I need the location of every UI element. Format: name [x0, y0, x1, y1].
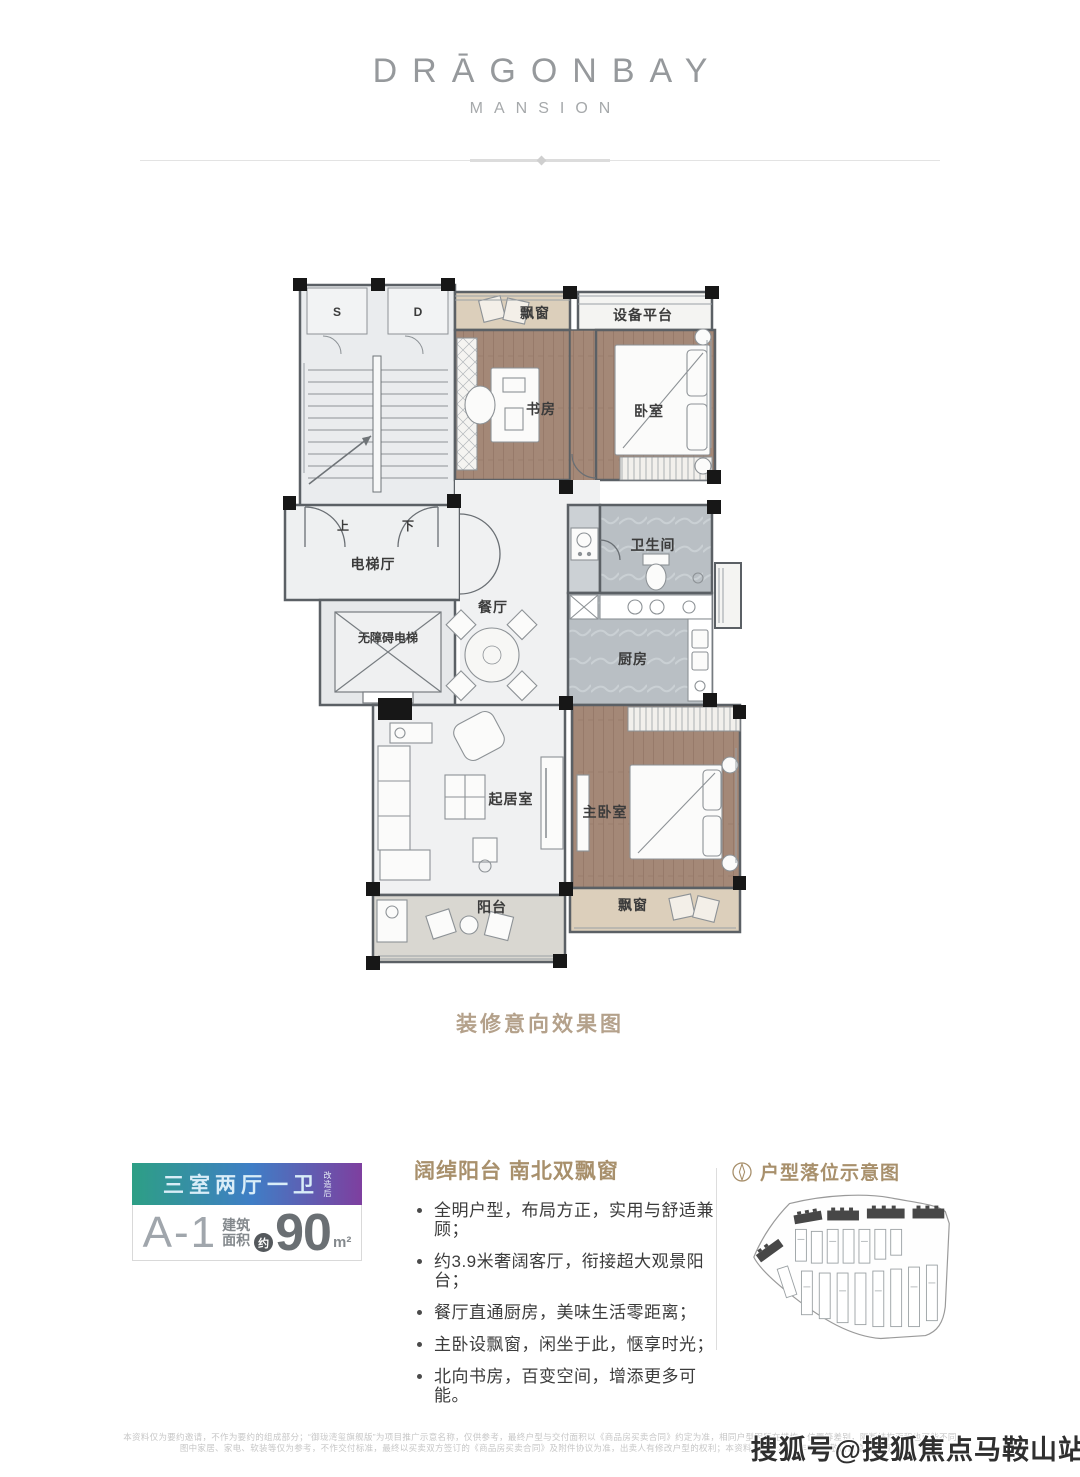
unit-area-box: A-1 建筑 面积 约 90 m²: [132, 1205, 362, 1261]
hallway: [455, 480, 600, 505]
siteplan-title: 户型落位示意图: [760, 1158, 900, 1185]
bullet-dot: [417, 1342, 422, 1347]
bullet-dot: [417, 1374, 422, 1379]
label-bay-bottom: 飘窗: [618, 897, 648, 913]
features-heading: 阔绰阳台 南北双飘窗: [414, 1155, 714, 1185]
unit-code: A-1: [143, 1208, 217, 1258]
label-bathroom: 卫生间: [631, 537, 676, 553]
siteplan-block: 户型落位示意图: [730, 1158, 980, 1363]
plan-caption: 装修意向效果图: [0, 1008, 1080, 1038]
label-accessible-elevator: 无障碍电梯: [357, 630, 418, 645]
label-living: 起居室: [488, 791, 534, 807]
bullet-dot: [417, 1208, 422, 1213]
label-bedroom: 卧室: [634, 403, 664, 419]
brand-subtitle: MANSION: [0, 100, 1080, 118]
label-kitchen: 厨房: [618, 651, 648, 667]
feature-text: 餐厅直通厨房，美味生活零距离；: [434, 1303, 697, 1322]
features-block: 阔绰阳台 南北双飘窗 全明户型，布局方正，实用与舒适兼顾； 约3.9米奢阔客厅，…: [414, 1155, 714, 1418]
unit-type-bar: 三室两厅一卫 改造后: [132, 1163, 362, 1205]
label-down: 下: [402, 519, 414, 533]
unit-type-note: 改造后: [323, 1171, 331, 1198]
unit-type-label: 三室两厅一卫: [163, 1169, 319, 1199]
feature-item: 主卧设飘窗，闲坐于此，惬享时光；: [414, 1335, 714, 1354]
approx-badge: 约: [254, 1233, 273, 1252]
label-shaft-d: D: [414, 305, 423, 319]
label-bay-top: 飘窗: [520, 305, 550, 321]
bedroom-corridor: [570, 330, 596, 505]
area-label-bottom: 面积: [222, 1233, 250, 1248]
bullet-dot: [417, 1310, 422, 1315]
area-unit: m²: [333, 1234, 351, 1251]
unit-badge: 三室两厅一卫 改造后 A-1 建筑 面积 约 90 m²: [132, 1163, 362, 1261]
label-elevator-hall: 电梯厅: [351, 556, 396, 572]
feature-text: 主卧设飘窗，闲坐于此，惬享时光；: [434, 1335, 714, 1354]
feature-item: 全明户型，布局方正，实用与舒适兼顾；: [414, 1201, 714, 1239]
bullet-dot: [417, 1259, 422, 1264]
area-labels: 建筑 面积: [222, 1218, 250, 1248]
label-master: 主卧室: [583, 804, 628, 820]
flyer-page: DRĀGONBAY MANSION: [0, 0, 1080, 1477]
feature-text: 北向书房，百变空间，增添更多可能。: [434, 1367, 714, 1405]
brand-block: DRĀGONBAY MANSION: [0, 52, 1080, 118]
watermark: 搜狐号@搜狐焦点马鞍山站: [751, 1428, 1080, 1467]
feature-text: 全明户型，布局方正，实用与舒适兼顾；: [434, 1201, 714, 1239]
feature-item: 餐厅直通厨房，美味生活零距离；: [414, 1303, 714, 1322]
label-dining: 餐厅: [477, 599, 508, 615]
divider-ornament: [537, 156, 547, 166]
brand-title: DRĀGONBAY: [0, 52, 1080, 91]
label-up: 上: [337, 518, 349, 533]
feature-item: 约3.9米奢阔客厅，衔接超大观景阳台；: [414, 1252, 714, 1290]
elevator-cab: [335, 612, 441, 703]
label-balcony: 阳台: [477, 899, 507, 915]
compass-icon: [730, 1160, 754, 1184]
elevator-hall: [285, 505, 460, 600]
header-divider: [140, 160, 940, 161]
siteplan-header: 户型落位示意图: [730, 1158, 980, 1185]
feature-item: 北向书房，百变空间，增添更多可能。: [414, 1367, 714, 1405]
feature-text: 约3.9米奢阔客厅，衔接超大观景阳台；: [434, 1252, 714, 1290]
label-study: 书房: [526, 401, 556, 417]
section-divider: [716, 1168, 717, 1350]
area-value: 90: [275, 1203, 331, 1263]
floorplan: S D 飘窗 设备平台 书房 卧室 上 下 电梯厅 无障碍电梯 餐厅 卫生间 厨…: [283, 278, 763, 978]
area-label-top: 建筑: [222, 1218, 250, 1233]
label-equipment: 设备平台: [613, 307, 673, 323]
feature-list: 全明户型，布局方正，实用与舒适兼顾； 约3.9米奢阔客厅，衔接超大观景阳台； 餐…: [414, 1201, 714, 1405]
label-shaft-s: S: [333, 305, 341, 319]
siteplan-map: [730, 1191, 980, 1363]
